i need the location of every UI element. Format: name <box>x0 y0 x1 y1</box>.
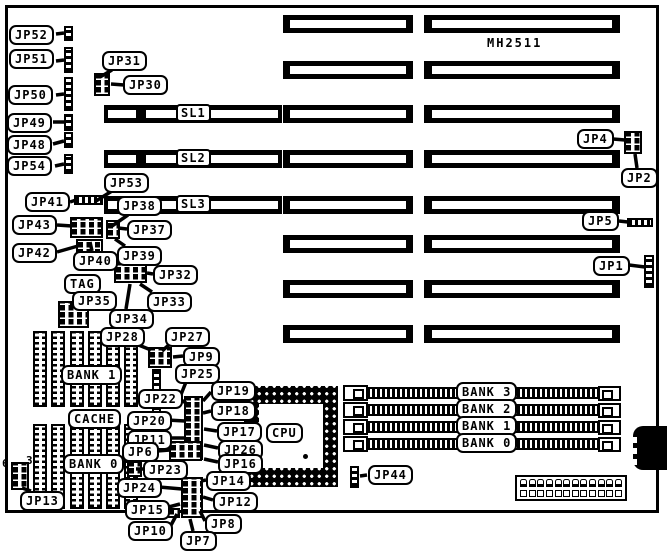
label-sl2: SL2 <box>176 149 211 167</box>
expansion-slot <box>424 280 620 298</box>
label-jp40: JP40 <box>73 251 118 271</box>
expansion-slot <box>424 15 620 33</box>
jumper-block-jp50 <box>64 77 73 111</box>
label-jp6: JP6 <box>122 442 159 462</box>
label-jp22: JP22 <box>138 389 183 409</box>
label-jp34: JP34 <box>109 309 154 329</box>
label-jp54: JP54 <box>7 156 52 176</box>
dip-chip <box>33 331 47 407</box>
label-jp32: JP32 <box>153 265 198 285</box>
jumper-block-jp44 <box>350 466 359 488</box>
label-jp15: JP15 <box>125 500 170 520</box>
jumper-block-jp43 <box>70 217 103 238</box>
keyboard-connector-notch <box>631 448 637 454</box>
label-jp23: JP23 <box>143 460 188 480</box>
label-jp24: JP24 <box>117 478 162 498</box>
label-jp49: JP49 <box>7 113 52 133</box>
jumper-block-jp4-jp2 <box>624 131 642 154</box>
label-jp18: JP18 <box>211 401 256 421</box>
jumper-block-jp30-jp31 <box>94 73 110 96</box>
expansion-slot <box>283 325 413 343</box>
label-jp27: JP27 <box>165 327 210 347</box>
expansion-slot <box>424 150 620 168</box>
label-jp51: JP51 <box>9 49 54 69</box>
simm-clip <box>598 420 621 435</box>
expansion-slot <box>424 325 620 343</box>
motherboard-diagram: MH2511 <box>0 0 667 554</box>
jumper-block-jp1 <box>644 255 654 288</box>
expansion-slot <box>283 280 413 298</box>
jumper-block-jp6 <box>169 441 202 461</box>
power-pins-top <box>520 479 622 487</box>
label-jp4: JP4 <box>577 129 614 149</box>
label-jp41: JP41 <box>25 192 70 212</box>
simm-clip <box>598 437 621 452</box>
label-jp13: JP13 <box>20 491 65 511</box>
jumper-block-jp54 <box>64 154 73 174</box>
label-jp39: JP39 <box>117 246 162 266</box>
label-jp31: JP31 <box>102 51 147 71</box>
simm-clip <box>343 419 368 435</box>
jumper-block-jp27-jp28 <box>148 347 172 368</box>
label-sl1: SL1 <box>176 104 211 122</box>
jp13-pin3-number: 3 <box>26 454 33 467</box>
expansion-slot <box>283 196 413 214</box>
power-pins-bottom <box>520 490 622 497</box>
expansion-slot <box>283 15 413 33</box>
label-jp35: JP35 <box>72 291 117 311</box>
chipset-label: MH2511 <box>487 36 542 50</box>
label-jp28: JP28 <box>100 327 145 347</box>
label-jp20: JP20 <box>127 411 172 431</box>
label-jp1: JP1 <box>593 256 630 276</box>
label-cache: CACHE <box>68 409 121 429</box>
label-jp42: JP42 <box>12 243 57 263</box>
keyboard-connector <box>633 426 667 470</box>
label-jp43: JP43 <box>12 215 57 235</box>
jumper-block-jp48 <box>64 132 73 148</box>
label-jp12: JP12 <box>213 492 258 512</box>
expansion-slot <box>283 105 413 123</box>
label-jp5: JP5 <box>582 211 619 231</box>
label-sl3: SL3 <box>176 195 211 213</box>
label-jp14: JP14 <box>206 471 251 491</box>
jp13-pin6-number: 6 <box>2 457 9 470</box>
expansion-slot <box>424 235 620 253</box>
keyboard-connector-notch <box>631 437 637 443</box>
jumper-block-jp37 <box>106 220 120 239</box>
label-jp52: JP52 <box>9 25 54 45</box>
cpu-pin1-marker <box>303 454 308 459</box>
keyboard-connector-notch <box>631 459 637 465</box>
jumper-block-jp23 <box>127 461 142 477</box>
simm-clip <box>598 403 621 418</box>
pin-header-jp41 <box>74 195 103 205</box>
label-jp33: JP33 <box>147 292 192 312</box>
label-jp30: JP30 <box>123 75 168 95</box>
label-jp25: JP25 <box>175 364 220 384</box>
label-jp48: JP48 <box>7 135 52 155</box>
label-jp50: JP50 <box>8 85 53 105</box>
simm-clip <box>343 385 368 401</box>
label-cpu: CPU <box>266 423 303 443</box>
label-jp44: JP44 <box>368 465 413 485</box>
simm-clip <box>598 386 621 401</box>
expansion-slot <box>424 61 620 79</box>
jumper-block-jp52 <box>64 26 73 41</box>
expansion-slot <box>283 235 413 253</box>
expansion-slot <box>424 105 620 123</box>
jumper-block-jp49 <box>64 114 73 131</box>
jumper-block-jp5 <box>627 218 653 227</box>
label-jp38: JP38 <box>117 196 162 216</box>
power-connector <box>515 475 627 501</box>
expansion-slot <box>283 61 413 79</box>
label-cache-bank1: BANK 1 <box>61 365 122 385</box>
jumper-strip-lower <box>181 477 203 518</box>
simm-clip <box>343 402 368 418</box>
label-jp19: JP19 <box>211 381 256 401</box>
jumper-block-jp51 <box>64 47 73 73</box>
label-jp17: JP17 <box>217 422 262 442</box>
label-jp10: JP10 <box>128 521 173 541</box>
label-jp2: JP2 <box>621 168 658 188</box>
expansion-slot <box>283 150 413 168</box>
simm-clip <box>343 436 368 452</box>
label-jp53: JP53 <box>104 173 149 193</box>
label-cache-bank0: BANK 0 <box>63 454 124 474</box>
label-bank0: BANK 0 <box>456 433 517 453</box>
label-jp37: JP37 <box>127 220 172 240</box>
label-jp7: JP7 <box>180 531 217 551</box>
